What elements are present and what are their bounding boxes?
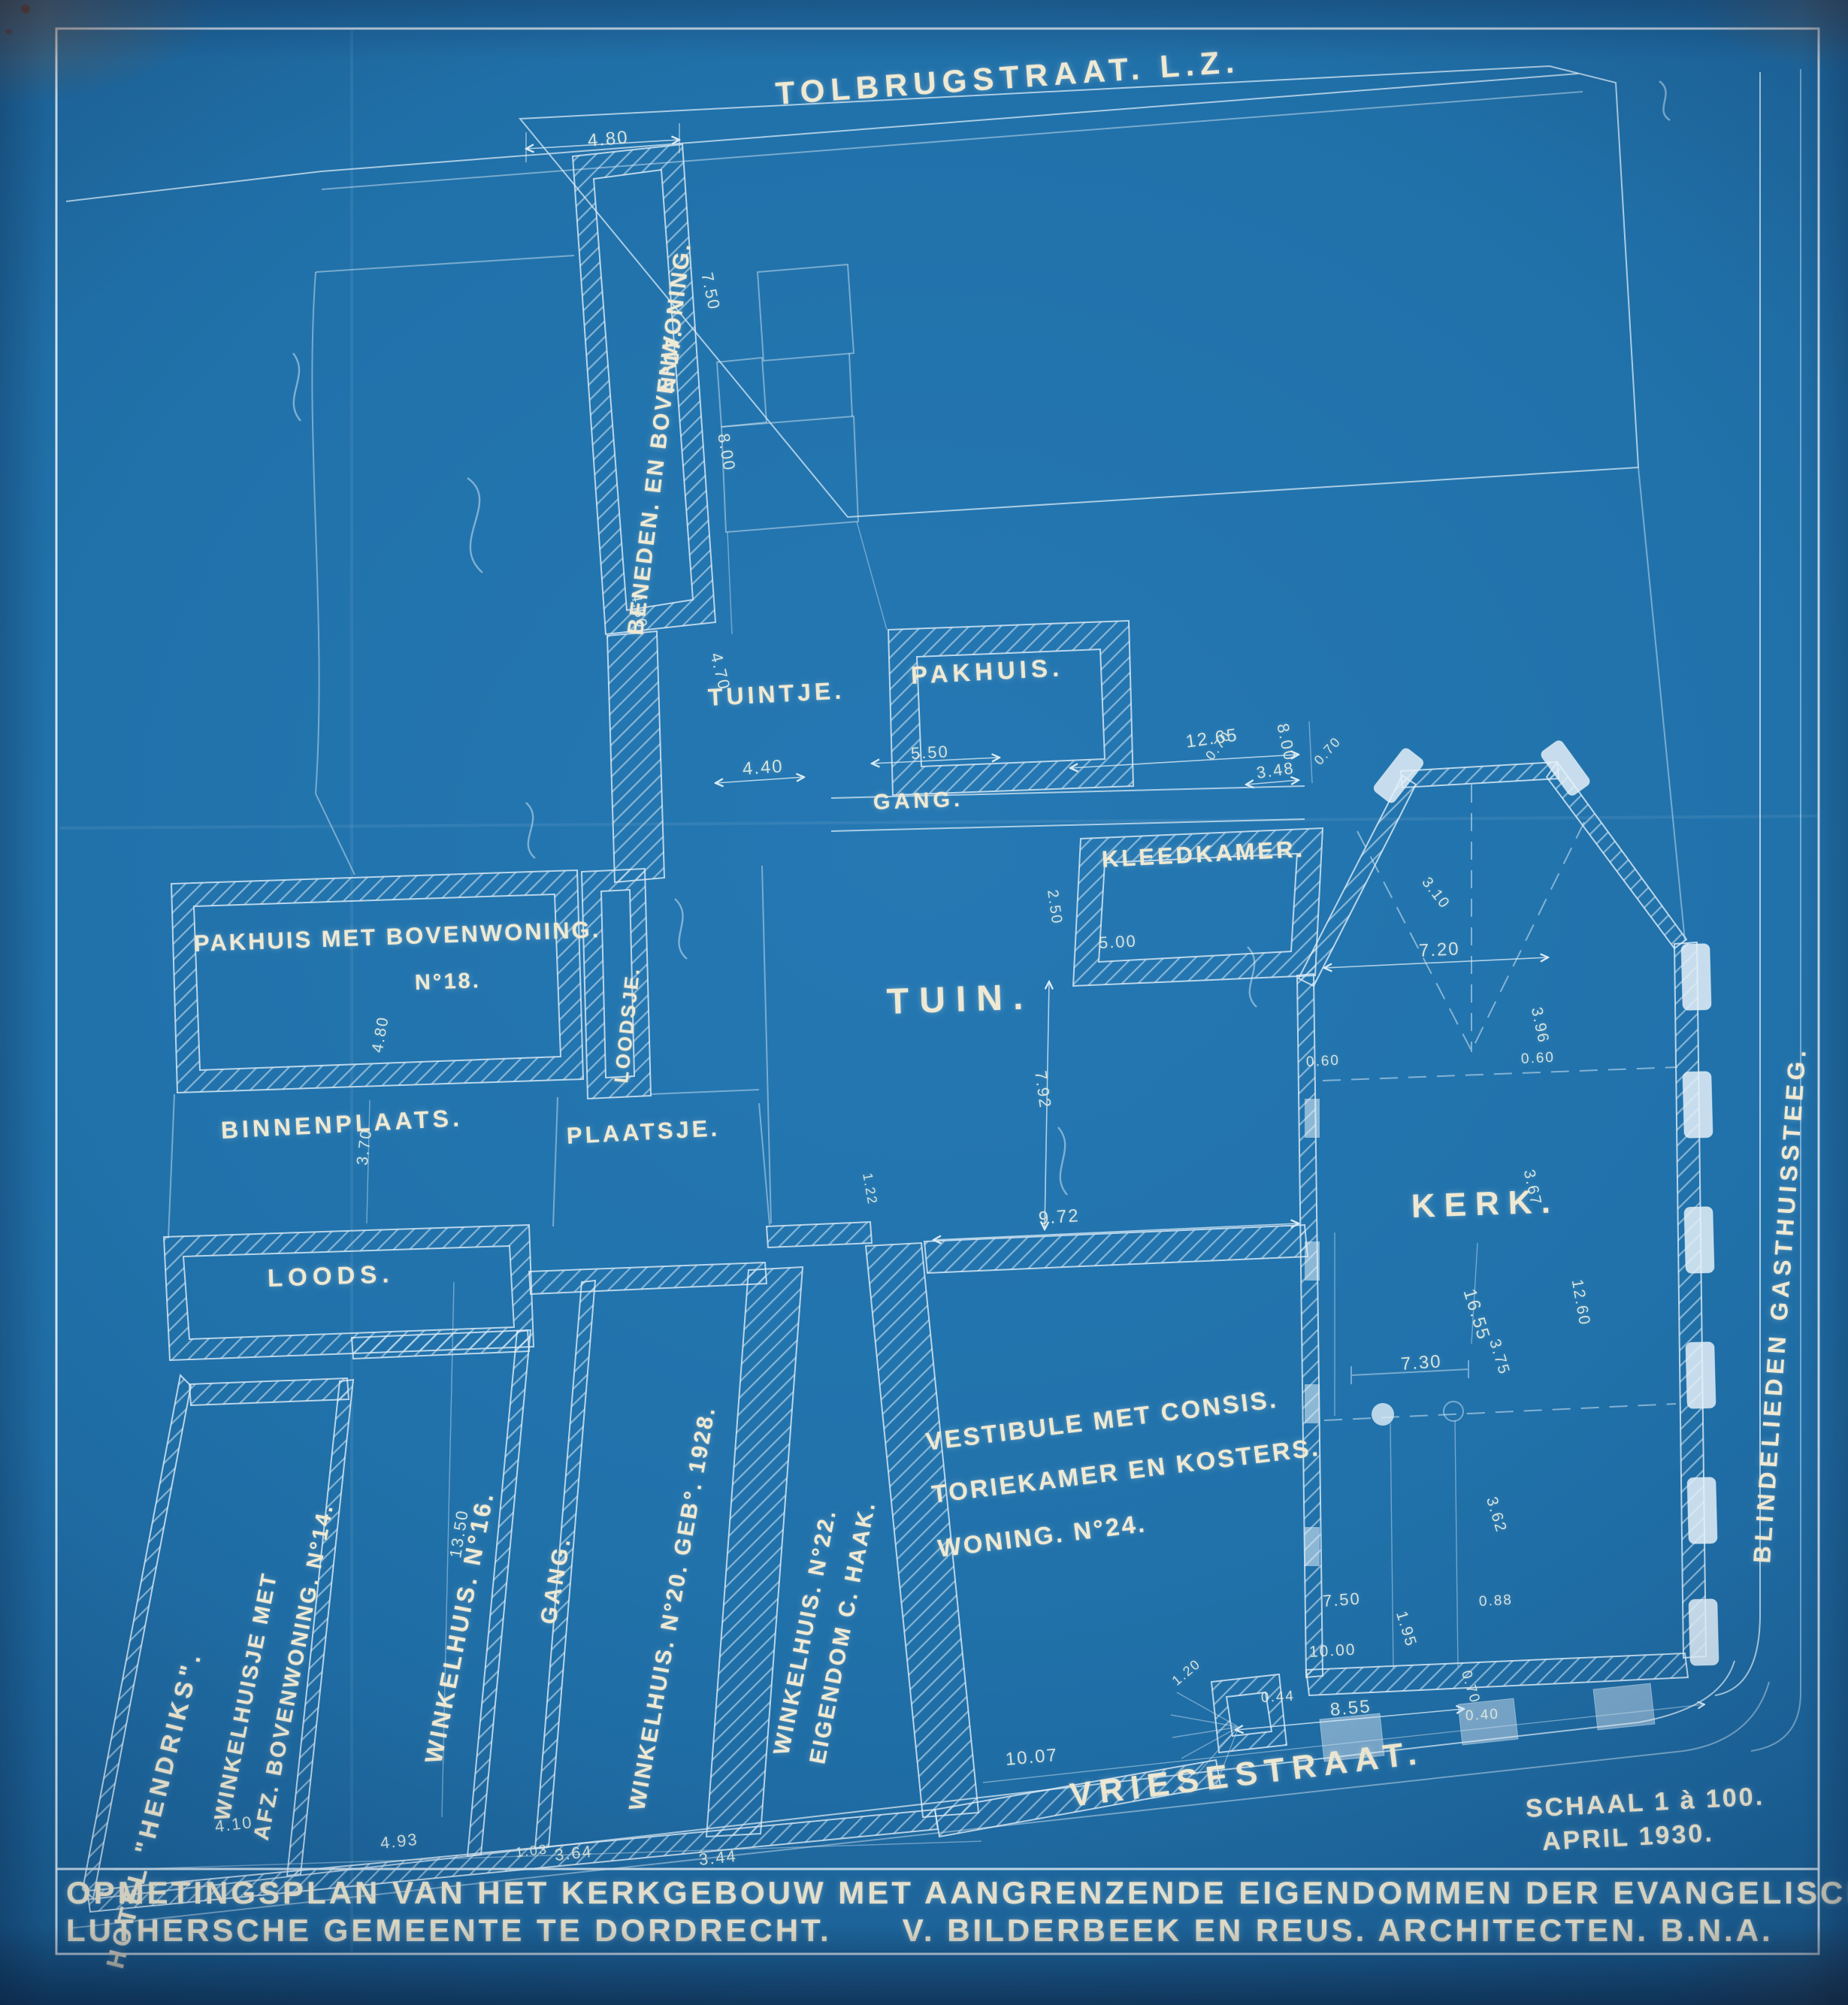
kerk-porch [1211,1674,1287,1752]
dim-5-00: 5.00 [1098,933,1137,951]
dim-7-92: 7.92 [1032,1069,1054,1109]
blueprint-sheet: TOLBRUGSTRAAT. L.Z. VRIESESTRAAT. BLINDE… [0,0,1848,2005]
title-line2: LUTHERSCHE GEMEENTE TE DORDRECHT. V. BIL… [66,1915,1774,1946]
room-label-no18: N°18. [414,970,481,994]
dim-10-00: 10.00 [1308,1642,1357,1660]
dim-4-93: 4.93 [380,1831,419,1852]
dim-0-44: 0.44 [1261,1689,1296,1705]
dim-0-88: 0.88 [1479,1593,1514,1609]
dim-4-80-n17: 4.80 [587,129,630,150]
dim-1-03: 1.03 [515,1843,549,1859]
dim-3-64: 3.64 [554,1843,594,1864]
dim-3-44: 3.44 [698,1848,738,1868]
buildings [83,144,1323,1912]
title-line1: OPMETINGSPLAN VAN HET KERKGEBOUW MET AAN… [66,1877,1848,1909]
wall-22-vestibule [866,1243,978,1817]
dim-3-70: 3.70 [355,1128,375,1166]
dim-0-60-a: 0.60 [1306,1054,1341,1069]
building-pakhuis-18 [171,870,583,1093]
dim-10-07: 10.07 [1005,1746,1059,1769]
room-label-loods: LOODS. [267,1261,395,1290]
dim-9-72: 9.72 [1038,1207,1080,1228]
dim-7-50-kerk: 7.50 [1322,1590,1361,1609]
building-pakhuis [888,621,1133,795]
room-label-tuin: TUIN. [886,979,1034,1021]
dim-8-55: 8.55 [1329,1698,1372,1719]
kerk-west-wall [1297,974,1323,1677]
kerk-east-wall [1674,942,1706,1658]
room-label-gang-north: GANG. [873,789,963,814]
dim-4-40: 4.40 [742,758,784,779]
dim-0-40: 0.40 [1465,1707,1500,1723]
dim-7-30: 7.30 [1400,1353,1442,1374]
dim-5-50: 5.50 [910,743,949,762]
dim-4-10: 4.10 [214,1814,254,1835]
dim-0-60-b: 0.60 [1521,1051,1556,1066]
dim-7-20: 7.20 [1418,940,1460,960]
